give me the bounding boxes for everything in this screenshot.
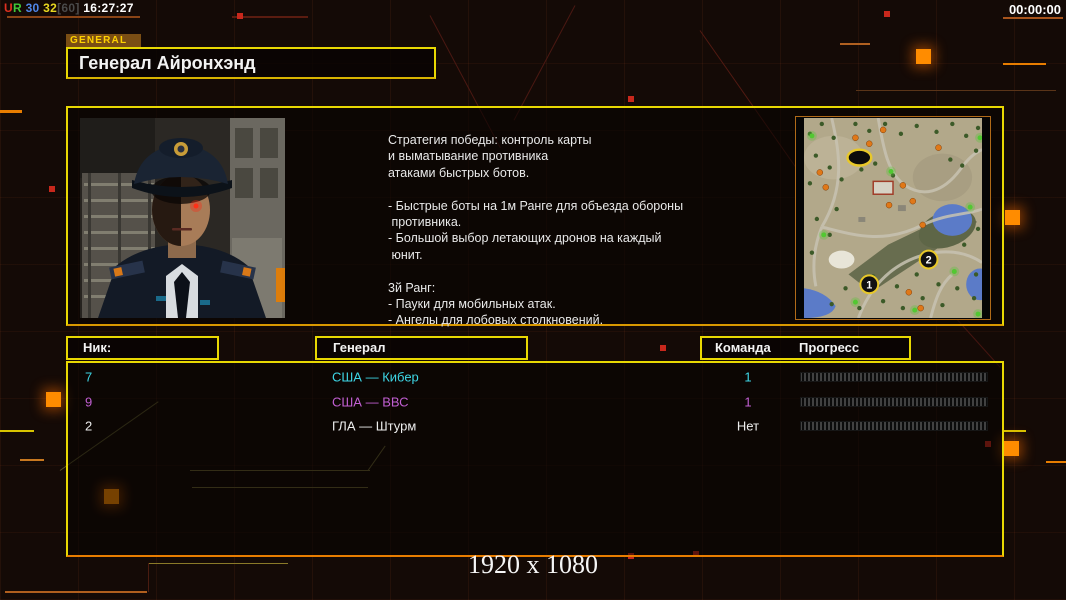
- player-row: 7 США — Кибер 1: [68, 365, 1002, 390]
- decoration: [856, 90, 1056, 91]
- decoration: [840, 43, 870, 45]
- column-header-nick: Ник:: [66, 336, 219, 360]
- status-part: 30: [22, 1, 40, 15]
- loading-screen: UR 30 32[60] 16:27:27 00:00:00 GENERAL Г…: [0, 0, 1066, 600]
- svg-text:2: 2: [926, 255, 932, 267]
- player-team: 1: [718, 394, 778, 409]
- decoration: [49, 186, 55, 192]
- player-row: 9 США — ВВС 1: [68, 390, 1002, 415]
- decoration: [20, 459, 44, 461]
- decoration: [1005, 210, 1020, 225]
- decoration: [1004, 430, 1026, 432]
- status-part: 16:27:27: [80, 1, 134, 15]
- status-part: U: [4, 1, 13, 15]
- column-header-team-progress: Команда Прогресс: [700, 336, 911, 360]
- decoration: [232, 16, 308, 18]
- decoration: [628, 96, 634, 102]
- decoration: [5, 591, 147, 593]
- svg-text:1: 1: [866, 279, 872, 291]
- decoration: [0, 430, 34, 432]
- player-team: 1: [718, 370, 778, 385]
- minimap-image: 1 2: [804, 118, 982, 318]
- decoration: [916, 49, 931, 64]
- decoration: [884, 11, 890, 17]
- decoration: [1003, 63, 1046, 65]
- status-part: [60]: [57, 1, 80, 15]
- player-row: 2 ГЛА — Штурм Нет: [68, 414, 1002, 439]
- session-status: UR 30 32[60] 16:27:27: [4, 1, 134, 15]
- decoration: [1003, 17, 1063, 19]
- players-table: 7 США — Кибер 1 9 США — ВВС 1 2 ГЛА — Шт…: [66, 361, 1004, 557]
- map-marker-1: 1: [860, 275, 878, 293]
- player-general: США — Кибер: [332, 370, 419, 385]
- player-nick: 2: [85, 419, 92, 434]
- decoration: [7, 16, 140, 18]
- tab-general[interactable]: GENERAL: [66, 34, 141, 48]
- player-general: ГЛА — Штурм: [332, 419, 416, 434]
- column-header-team-label: Команда: [715, 338, 771, 358]
- decoration: [660, 345, 666, 351]
- decoration: [1004, 441, 1019, 456]
- column-header-general-label: Генерал: [333, 338, 385, 358]
- map-start-oval: [848, 150, 872, 166]
- column-header-progress-label: Прогресс: [799, 338, 859, 358]
- player-team: Нет: [718, 419, 778, 434]
- decoration: [46, 392, 61, 407]
- status-part: 32: [40, 1, 58, 15]
- resolution-label: 1920 x 1080: [0, 550, 1066, 580]
- player-nick: 9: [85, 394, 92, 409]
- player-general: США — ВВС: [332, 394, 409, 409]
- progress-bar: [800, 421, 988, 431]
- column-header-nick-label: Ник:: [83, 338, 111, 358]
- player-nick: 7: [85, 370, 92, 385]
- progress-bar: [800, 372, 988, 382]
- decoration: [1046, 461, 1066, 463]
- decoration: [0, 110, 22, 113]
- status-part: R: [13, 1, 22, 15]
- general-info-panel: Стратегия победы: контроль карты и вымат…: [66, 106, 1004, 326]
- decoration: [237, 13, 243, 19]
- portrait-image: [80, 118, 285, 318]
- general-portrait: [80, 118, 285, 318]
- page-title: Генерал Айронхэнд: [66, 47, 436, 79]
- match-timer: 00:00:00: [1009, 2, 1061, 17]
- progress-bar: [800, 397, 988, 407]
- strategy-description: Стратегия победы: контроль карты и вымат…: [388, 132, 723, 329]
- minimap: 1 2: [795, 116, 991, 320]
- column-header-general: Генерал: [315, 336, 528, 360]
- map-marker-2: 2: [920, 251, 938, 269]
